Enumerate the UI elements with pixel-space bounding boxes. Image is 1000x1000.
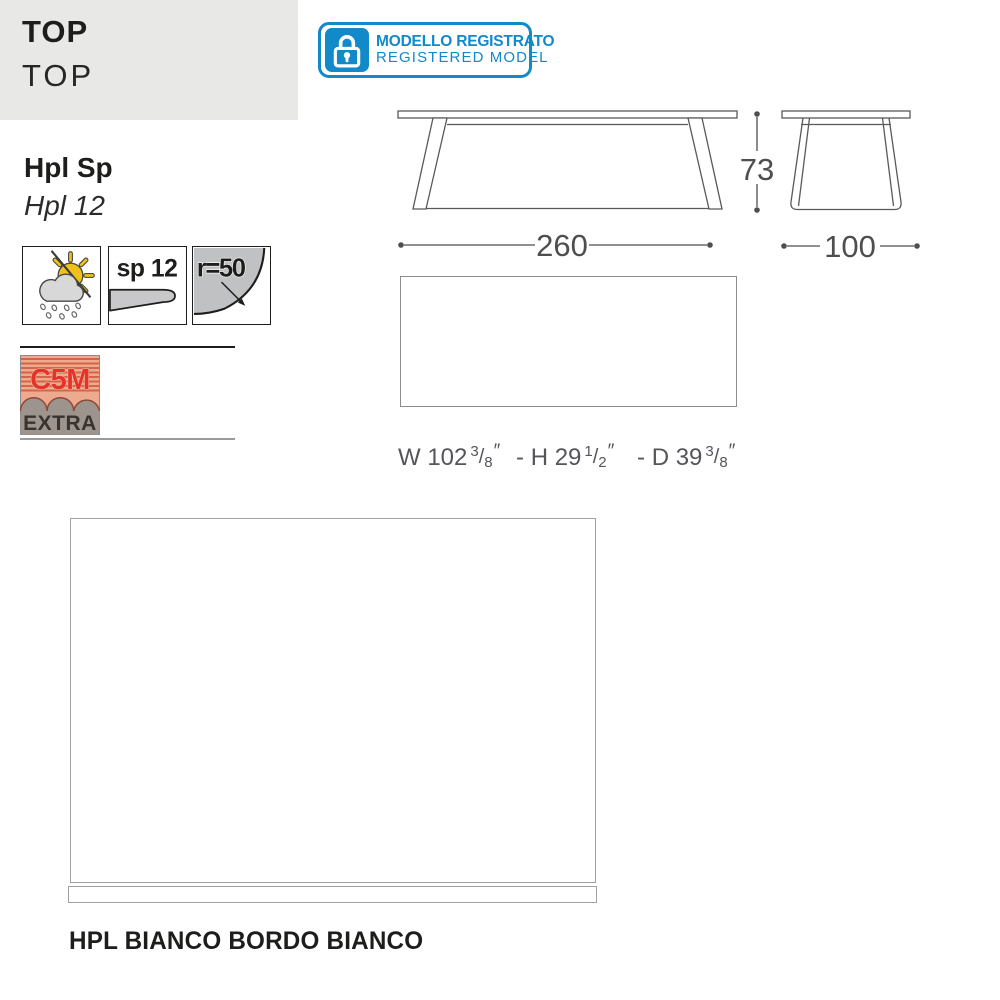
material-variant: Hpl 12 bbox=[24, 190, 105, 222]
front-view-tabletop bbox=[398, 111, 737, 118]
lock-icon bbox=[325, 28, 369, 72]
corner-radius-icon: r=50 bbox=[192, 246, 271, 325]
page-subtitle: TOP bbox=[22, 58, 94, 94]
divider-line-top bbox=[20, 346, 235, 348]
inch-mark: ″ bbox=[729, 441, 736, 462]
height-dimension: 73 bbox=[740, 111, 774, 213]
imperial-depth: - D 39 bbox=[637, 444, 702, 471]
finish-swatch bbox=[70, 518, 596, 883]
registered-model-text: MODELLO REGISTRATO REGISTERED MODEL bbox=[376, 33, 554, 67]
radius-label: r=50 bbox=[197, 254, 246, 282]
finish-swatch-edge bbox=[68, 886, 597, 903]
top-view-outline bbox=[400, 276, 737, 407]
depth-value: 100 bbox=[824, 229, 876, 264]
registered-model-line2: REGISTERED MODEL bbox=[376, 50, 554, 67]
side-view-tabletop bbox=[782, 111, 910, 118]
width-value: 260 bbox=[536, 228, 588, 263]
certification-class: C5M bbox=[30, 364, 90, 396]
certification-grade: EXTRA bbox=[23, 412, 97, 435]
divider-line-bottom bbox=[20, 438, 235, 440]
front-view-right-leg bbox=[688, 118, 722, 209]
depth-dimension: 100 bbox=[781, 229, 920, 264]
material-name: Hpl Sp bbox=[24, 152, 113, 184]
header-box: TOP TOP bbox=[0, 0, 298, 120]
catalog-page: TOP TOP MODELLO REGISTRATO REGISTERED MO… bbox=[0, 0, 1000, 1000]
thickness-label: sp 12 bbox=[117, 255, 178, 282]
thickness-icon: sp 12 bbox=[108, 246, 187, 325]
page-title: TOP bbox=[22, 14, 88, 50]
inch-mark: ″ bbox=[608, 441, 615, 462]
width-dimension: 260 bbox=[398, 228, 713, 263]
inch-mark: ″ bbox=[494, 441, 501, 462]
outdoor-weather-icon bbox=[22, 246, 101, 325]
registered-model-badge: MODELLO REGISTRATO REGISTERED MODEL bbox=[318, 22, 532, 78]
registered-model-line1: MODELLO REGISTRATO bbox=[376, 33, 554, 50]
certification-badge: C5M EXTRA bbox=[20, 355, 100, 435]
technical-drawing: 73 260 100 bbox=[380, 100, 940, 270]
imperial-dimensions: W 1023/8″ - H 291/2″ - D 393/8″ bbox=[398, 444, 735, 472]
height-value: 73 bbox=[740, 152, 774, 187]
imperial-height: - H 29 bbox=[516, 444, 581, 471]
finish-caption: HPL BIANCO BORDO BIANCO bbox=[69, 927, 423, 956]
imperial-width: W 102 bbox=[398, 444, 467, 471]
front-view-left-leg bbox=[413, 118, 447, 209]
